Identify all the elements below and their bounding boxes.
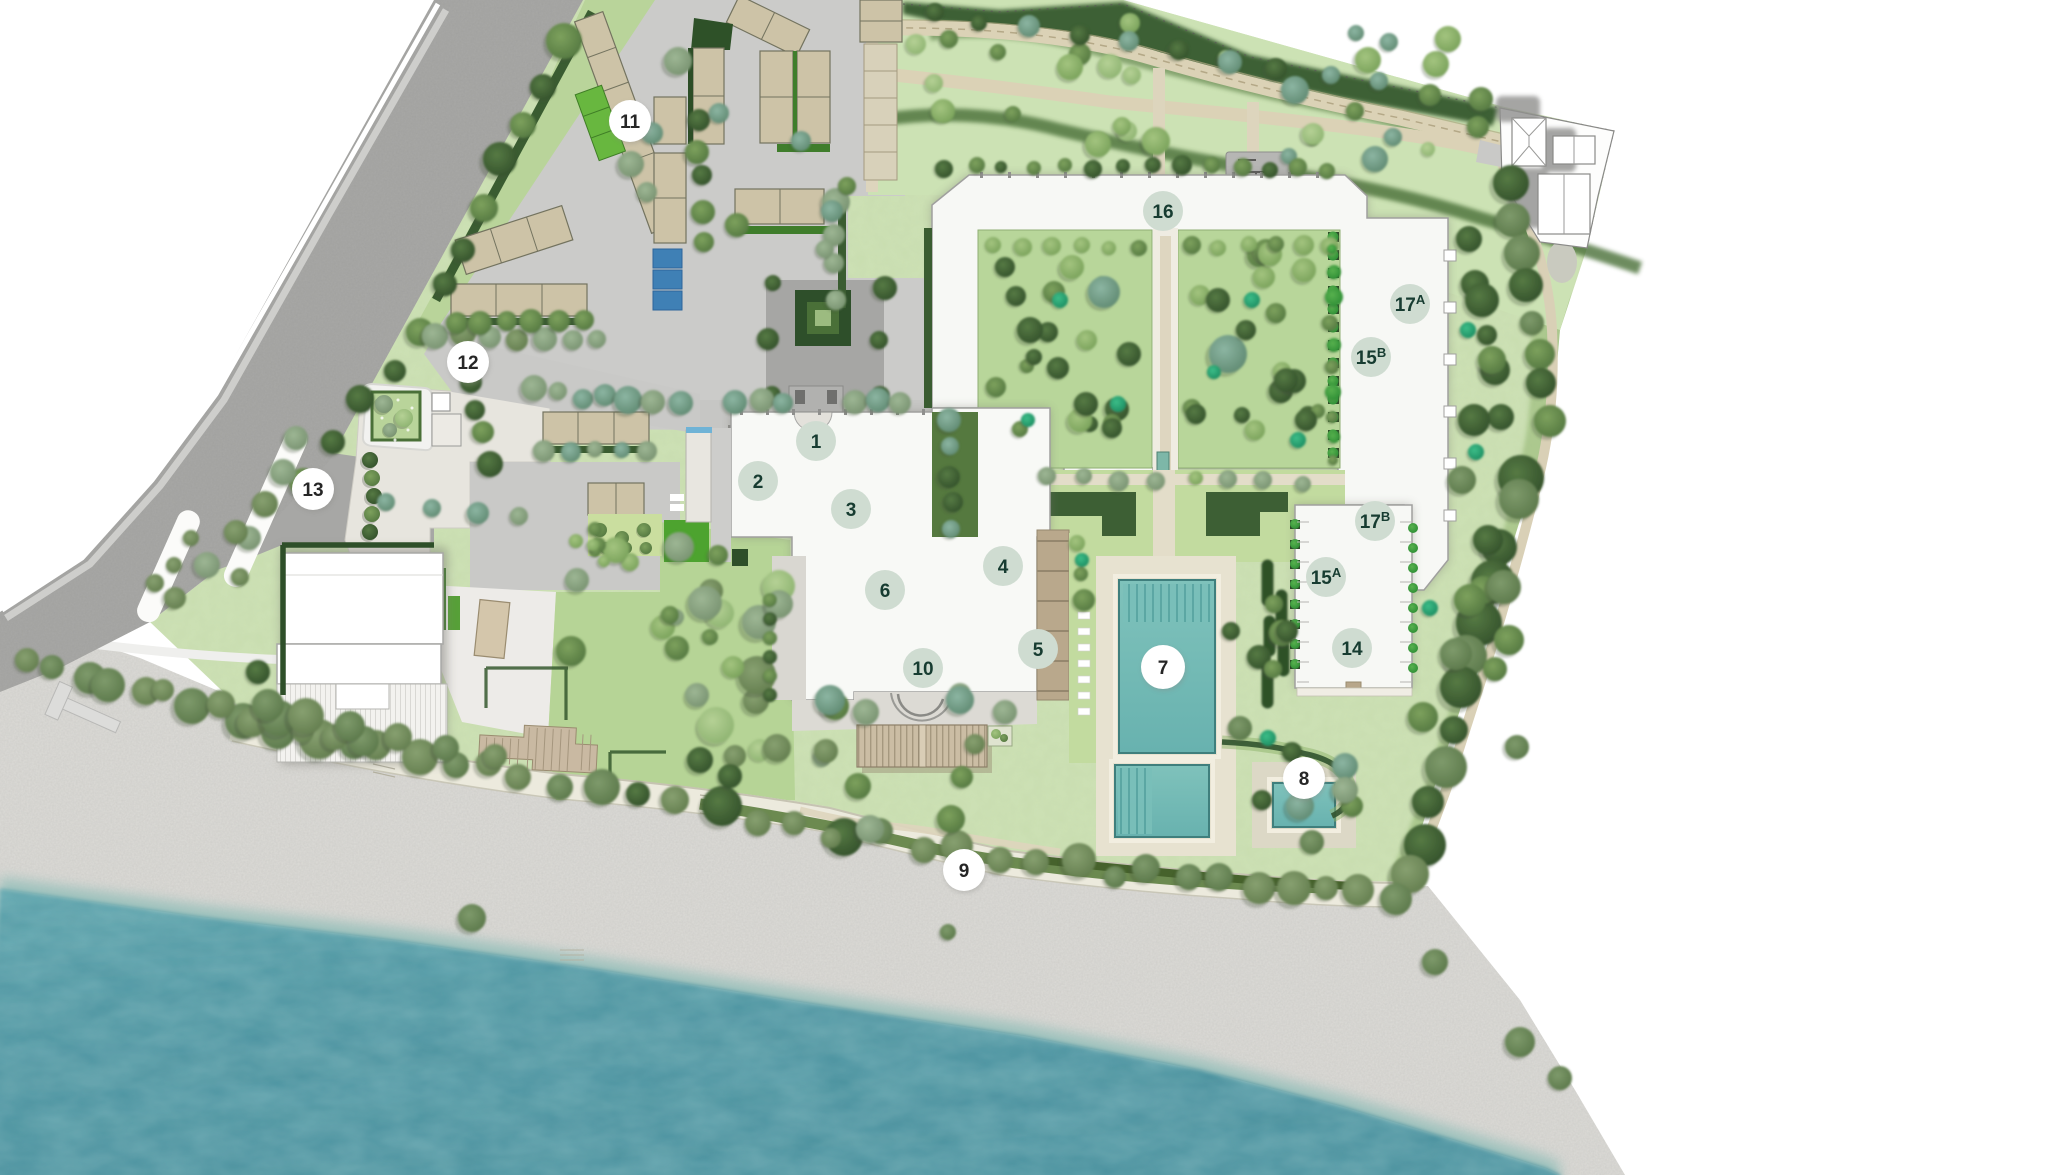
svg-text:8: 8 [1299, 769, 1310, 790]
svg-text:12: 12 [457, 353, 478, 374]
svg-text:10: 10 [912, 659, 933, 680]
svg-text:9: 9 [959, 861, 970, 882]
svg-text:6: 6 [880, 581, 891, 602]
svg-text:11: 11 [620, 112, 641, 133]
svg-text:3: 3 [846, 500, 857, 521]
svg-text:13: 13 [302, 480, 323, 501]
svg-text:2: 2 [753, 472, 764, 493]
svg-text:16: 16 [1152, 202, 1173, 223]
svg-text:5: 5 [1033, 640, 1044, 661]
svg-text:1: 1 [811, 432, 822, 453]
svg-text:14: 14 [1341, 639, 1363, 660]
svg-text:4: 4 [998, 557, 1009, 578]
svg-text:7: 7 [1158, 658, 1169, 679]
